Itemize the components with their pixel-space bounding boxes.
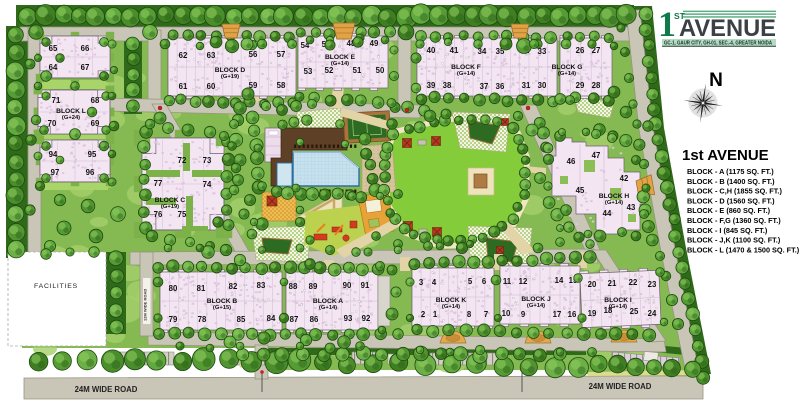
svg-text:47: 47 xyxy=(592,151,601,160)
svg-text:BLOCK D: BLOCK D xyxy=(215,67,246,74)
svg-text:N: N xyxy=(709,70,723,91)
svg-text:46: 46 xyxy=(567,157,576,166)
svg-text:23: 23 xyxy=(648,280,657,289)
svg-text:37: 37 xyxy=(480,82,489,91)
svg-text:3: 3 xyxy=(419,278,424,287)
svg-text:12: 12 xyxy=(519,277,528,286)
svg-text:FACILITIES: FACILITIES xyxy=(34,283,78,290)
svg-text:BLOCK B: BLOCK B xyxy=(207,298,238,305)
svg-text:56: 56 xyxy=(249,50,258,59)
svg-text:79: 79 xyxy=(169,315,178,324)
svg-text:89: 89 xyxy=(309,282,318,291)
svg-text:67: 67 xyxy=(81,63,90,72)
svg-text:(G+14): (G+14) xyxy=(457,71,475,77)
svg-text:16: 16 xyxy=(568,310,577,319)
svg-text:63: 63 xyxy=(207,51,216,60)
svg-text:BLOCK - C,H (1855 SQ. FT.): BLOCK - C,H (1855 SQ. FT.) xyxy=(687,187,782,196)
svg-text:1st AVENUE: 1st AVENUE xyxy=(682,147,769,164)
svg-text:40: 40 xyxy=(427,46,436,55)
svg-text:92: 92 xyxy=(362,314,371,323)
svg-text:52: 52 xyxy=(325,66,334,75)
svg-text:29: 29 xyxy=(576,81,585,90)
svg-text:84: 84 xyxy=(267,314,276,323)
svg-text:38: 38 xyxy=(443,81,452,90)
svg-text:BLOCK J: BLOCK J xyxy=(521,296,551,303)
svg-text:74: 74 xyxy=(203,180,212,189)
svg-text:95: 95 xyxy=(88,150,97,159)
svg-text:BLOCK - B (1400 SQ. FT.): BLOCK - B (1400 SQ. FT.) xyxy=(687,177,775,186)
svg-text:BLOCK L: BLOCK L xyxy=(56,108,86,115)
svg-text:90: 90 xyxy=(343,281,352,290)
svg-text:78: 78 xyxy=(198,315,207,324)
svg-text:BLOCK K: BLOCK K xyxy=(436,297,467,304)
svg-text:24M WIDE ROAD: 24M WIDE ROAD xyxy=(589,382,652,391)
svg-text:72: 72 xyxy=(178,156,187,165)
svg-text:24M WIDE ROAD: 24M WIDE ROAD xyxy=(75,385,138,394)
svg-text:(G+24): (G+24) xyxy=(62,115,80,121)
svg-text:58: 58 xyxy=(277,81,286,90)
svg-text:5: 5 xyxy=(468,277,473,286)
svg-text:44: 44 xyxy=(603,209,612,218)
svg-text:(G+14): (G+14) xyxy=(319,305,337,311)
svg-text:(G+19): (G+19) xyxy=(161,204,179,210)
svg-text:(G+19): (G+19) xyxy=(221,74,239,80)
svg-text:97: 97 xyxy=(51,168,60,177)
svg-text:12M WIDE ROAD: 12M WIDE ROAD xyxy=(143,289,148,321)
svg-text:42: 42 xyxy=(620,174,629,183)
svg-text:21: 21 xyxy=(608,279,617,288)
svg-text:62: 62 xyxy=(179,51,188,60)
svg-text:BLOCK - F,G (1360 SQ. FT.): BLOCK - F,G (1360 SQ. FT.) xyxy=(687,216,781,225)
svg-text:65: 65 xyxy=(49,44,58,53)
svg-text:91: 91 xyxy=(361,281,370,290)
svg-text:(G+14): (G+14) xyxy=(331,61,349,67)
svg-text:BLOCK F: BLOCK F xyxy=(451,64,481,71)
svg-text:30: 30 xyxy=(538,81,547,90)
svg-text:81: 81 xyxy=(197,284,206,293)
svg-text:80: 80 xyxy=(169,284,178,293)
svg-text:BLOCK I: BLOCK I xyxy=(604,297,632,304)
svg-text:BLOCK H: BLOCK H xyxy=(599,193,630,200)
svg-text:70: 70 xyxy=(48,119,57,128)
svg-text:41: 41 xyxy=(450,46,459,55)
svg-text:8: 8 xyxy=(467,310,472,319)
svg-text:77: 77 xyxy=(154,179,163,188)
svg-text:4: 4 xyxy=(432,278,437,287)
svg-text:83: 83 xyxy=(257,281,266,290)
svg-text:17: 17 xyxy=(553,310,562,319)
svg-text:45: 45 xyxy=(576,186,585,195)
svg-text:BLOCK - L (1470 & 1500 SQ. FT: BLOCK - L (1470 & 1500 SQ. FT.) xyxy=(687,245,800,254)
svg-text:(G+15): (G+15) xyxy=(213,305,231,311)
svg-text:22: 22 xyxy=(629,278,638,287)
svg-text:93: 93 xyxy=(344,314,353,323)
svg-text:(G+14): (G+14) xyxy=(609,304,627,310)
svg-text:66: 66 xyxy=(81,44,90,53)
svg-text:10: 10 xyxy=(502,309,511,318)
svg-text:71: 71 xyxy=(52,96,61,105)
svg-text:BLOCK G: BLOCK G xyxy=(552,64,583,71)
svg-text:(G+14): (G+14) xyxy=(605,200,623,206)
svg-text:60: 60 xyxy=(207,82,216,91)
svg-text:49: 49 xyxy=(370,39,379,48)
svg-text:82: 82 xyxy=(229,282,238,291)
svg-text:BLOCK - I (845 SQ. FT.): BLOCK - I (845 SQ. FT.) xyxy=(687,226,768,235)
svg-text:BLOCK C: BLOCK C xyxy=(155,197,186,204)
svg-text:53: 53 xyxy=(304,67,313,76)
svg-text:57: 57 xyxy=(277,50,286,59)
svg-text:76: 76 xyxy=(154,210,163,219)
svg-text:64: 64 xyxy=(49,63,58,72)
svg-text:14: 14 xyxy=(555,276,564,285)
svg-text:86: 86 xyxy=(310,315,319,324)
svg-text:GC-1, GAUR CITY, GH-01, SEC.-4: GC-1, GAUR CITY, GH-01, SEC.-4, GREATER … xyxy=(664,41,772,47)
svg-text:51: 51 xyxy=(353,66,362,75)
svg-text:BLOCK - J,K (1100 SQ. FT.): BLOCK - J,K (1100 SQ. FT.) xyxy=(687,236,781,245)
svg-text:7: 7 xyxy=(484,310,488,319)
svg-text:88: 88 xyxy=(289,282,298,291)
svg-text:24: 24 xyxy=(648,309,657,318)
svg-text:(G+14): (G+14) xyxy=(558,71,576,77)
svg-text:20: 20 xyxy=(588,280,597,289)
svg-text:26: 26 xyxy=(576,46,585,55)
svg-text:87: 87 xyxy=(290,315,299,324)
svg-text:31: 31 xyxy=(522,81,531,90)
svg-text:28: 28 xyxy=(592,81,601,90)
svg-text:6: 6 xyxy=(482,277,487,286)
svg-text:1: 1 xyxy=(433,310,438,319)
svg-text:BLOCK E: BLOCK E xyxy=(325,54,356,61)
svg-text:19: 19 xyxy=(588,309,597,318)
svg-text:(G+14): (G+14) xyxy=(527,303,545,309)
svg-text:43: 43 xyxy=(627,203,636,212)
svg-text:1: 1 xyxy=(658,4,676,44)
svg-text:50: 50 xyxy=(376,66,385,75)
svg-text:BLOCK - A (1175 SQ. FT.): BLOCK - A (1175 SQ. FT.) xyxy=(687,167,774,176)
svg-text:73: 73 xyxy=(203,156,212,165)
svg-text:11: 11 xyxy=(503,277,512,286)
svg-text:61: 61 xyxy=(179,82,188,91)
svg-text:96: 96 xyxy=(86,168,95,177)
svg-text:69: 69 xyxy=(91,119,100,128)
svg-text:BLOCK - E (860 SQ. FT.): BLOCK - E (860 SQ. FT.) xyxy=(687,206,771,215)
svg-text:BLOCK A: BLOCK A xyxy=(313,298,343,305)
svg-text:(G+14): (G+14) xyxy=(442,304,460,310)
svg-text:85: 85 xyxy=(237,315,246,324)
svg-text:36: 36 xyxy=(496,82,505,91)
svg-text:AVENUE: AVENUE xyxy=(679,15,776,42)
svg-text:68: 68 xyxy=(91,96,100,105)
svg-text:9: 9 xyxy=(521,310,526,319)
svg-text:39: 39 xyxy=(427,81,436,90)
svg-text:75: 75 xyxy=(178,210,187,219)
svg-text:BLOCK - D (1560 SQ. FT.): BLOCK - D (1560 SQ. FT.) xyxy=(687,196,775,205)
svg-text:2: 2 xyxy=(421,310,426,319)
svg-text:25: 25 xyxy=(630,307,639,316)
